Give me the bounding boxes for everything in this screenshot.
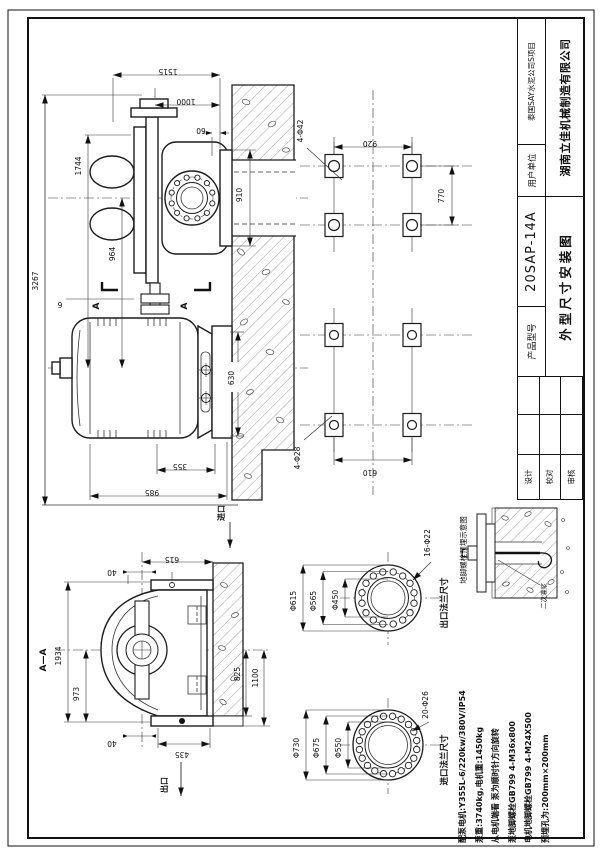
dim-615: 615 xyxy=(165,555,180,564)
outlet-flange-detail: Φ615 Φ565 Φ450 16-Φ22 出口法兰尺寸 xyxy=(289,529,450,645)
customer-value: 泰国SAY水泥公司S项目 xyxy=(518,19,545,144)
dim-6: 6 xyxy=(57,300,62,309)
dim-355: 355 xyxy=(173,462,188,471)
label-outlet-holes: 16-Φ22 xyxy=(423,529,432,557)
grout-label: 二次灌浆 xyxy=(539,583,548,610)
inlet-flange-title: 进口法兰尺寸 xyxy=(439,734,450,786)
note-rotation: 从电机端看 泵为顺时针方向旋转 xyxy=(488,645,505,843)
dim-outlet-bc: Φ565 xyxy=(309,591,318,611)
signature-grid: 设计 校对 审核 xyxy=(518,376,583,499)
dim-40-bottom: 40 xyxy=(107,739,117,748)
dim-1744: 1744 xyxy=(74,156,83,175)
dim-60: 60 xyxy=(196,126,206,135)
inlet-annotation: 进口 xyxy=(216,505,226,521)
sign-label-review: 审核 xyxy=(561,454,583,499)
dim-920: 920 xyxy=(363,139,378,148)
label-motor-holes: 4-Φ28 xyxy=(293,446,302,469)
inlet-flange-detail: Φ730 Φ675 Φ550 20-Φ26 进口法兰尺寸 xyxy=(292,691,450,794)
dim-inlet-bc: Φ675 xyxy=(312,738,321,758)
section-cut-label-a1: A xyxy=(92,302,102,309)
dim-825: 825 xyxy=(233,667,242,682)
label-inlet-holes: 20-Φ26 xyxy=(421,691,430,719)
dim-inlet-od: Φ730 xyxy=(292,738,301,758)
product-model-value: 20SAP-14A xyxy=(518,197,545,306)
dim-973: 973 xyxy=(72,687,81,702)
outlet-annotation: 出口 xyxy=(159,777,169,793)
dim-outlet-od: Φ615 xyxy=(289,591,298,611)
dim-630: 630 xyxy=(227,371,236,386)
sign-date-design xyxy=(518,376,540,414)
dim-inlet-id: Φ550 xyxy=(334,738,343,758)
anchor-detail-title: 地脚螺栓预埋示意图 xyxy=(458,516,468,584)
dim-40-top: 40 xyxy=(107,568,117,577)
sign-name-review xyxy=(561,414,583,454)
dim-964: 964 xyxy=(108,247,117,262)
note-motor-anchor-bolts: 电机地脚螺栓GB799 4-M24X500 xyxy=(521,645,538,843)
dim-outlet-id: Φ450 xyxy=(331,590,340,610)
title-block: 设计 校对 审核 产品型号 20SAP-14A 外型尺寸安装图 用户单位 泰国S… xyxy=(517,18,584,500)
dim-985: 985 xyxy=(145,488,160,497)
company-name: 湖南立佳机械制造有限公司 xyxy=(546,19,583,196)
sign-label-check: 校对 xyxy=(540,454,562,499)
dim-1515: 1515 xyxy=(158,67,177,76)
dim-910: 910 xyxy=(235,188,244,203)
sign-date-review xyxy=(561,376,583,414)
dim-overall-height: 3267 xyxy=(31,271,40,290)
sign-date-check xyxy=(540,376,562,414)
model-section: 产品型号 20SAP-14A 外型尺寸安装图 xyxy=(518,196,583,376)
dim-610: 610 xyxy=(363,468,378,477)
dim-435: 435 xyxy=(175,750,190,759)
dim-1100: 1100 xyxy=(251,668,260,687)
note-weights: 泵重:3740kg,电机重:1450kg xyxy=(472,645,489,843)
label-pump-holes: 4-Φ42 xyxy=(296,119,305,142)
foundation-plan-view: 920 770 610 4-Φ42 4-Φ28 xyxy=(293,90,472,495)
dim-1934: 1934 xyxy=(54,646,63,665)
drawing-title: 外型尺寸安装图 xyxy=(546,197,583,376)
sign-label-design: 设计 xyxy=(518,454,540,499)
section-title: A—A xyxy=(39,649,49,672)
section-aa-view: A—A 1934 973 40 615 40 435 825 1100 出口 xyxy=(39,552,270,796)
dim-1000: 1000 xyxy=(176,97,195,106)
note-motor-spec: 配泵电机:Y355L-6/220kw/380V/IP54 xyxy=(455,645,472,843)
sign-name-design xyxy=(518,414,540,454)
anchor-bolt-detail: 地脚螺栓预埋示意图 二次灌浆 xyxy=(458,508,570,609)
dim-770: 770 xyxy=(437,189,446,204)
note-embedded-holes: 预埋孔为:200mm×200mm xyxy=(538,645,555,843)
notes-block: 配泵电机:Y355L-6/220kw/380V/IP54 泵重:3740kg,电… xyxy=(455,645,557,843)
note-pump-anchor-bolts: 泵地脚螺栓GB799 4-M36x800 xyxy=(505,645,522,843)
section-cut-label-a2: A xyxy=(180,302,190,309)
sign-name-check xyxy=(540,414,562,454)
product-model-label: 产品型号 xyxy=(518,306,545,376)
main-installation-view: 3267 1744 964 1515 1000 60 6 355 985 630… xyxy=(31,67,308,548)
customer-label: 用户单位 xyxy=(518,144,545,196)
drawing-page: 3267 1744 964 1515 1000 60 6 355 985 630… xyxy=(0,0,604,854)
customer-section: 用户单位 泰国SAY水泥公司S项目 湖南立佳机械制造有限公司 xyxy=(518,19,583,196)
outlet-flange-title: 出口法兰尺寸 xyxy=(439,577,450,629)
